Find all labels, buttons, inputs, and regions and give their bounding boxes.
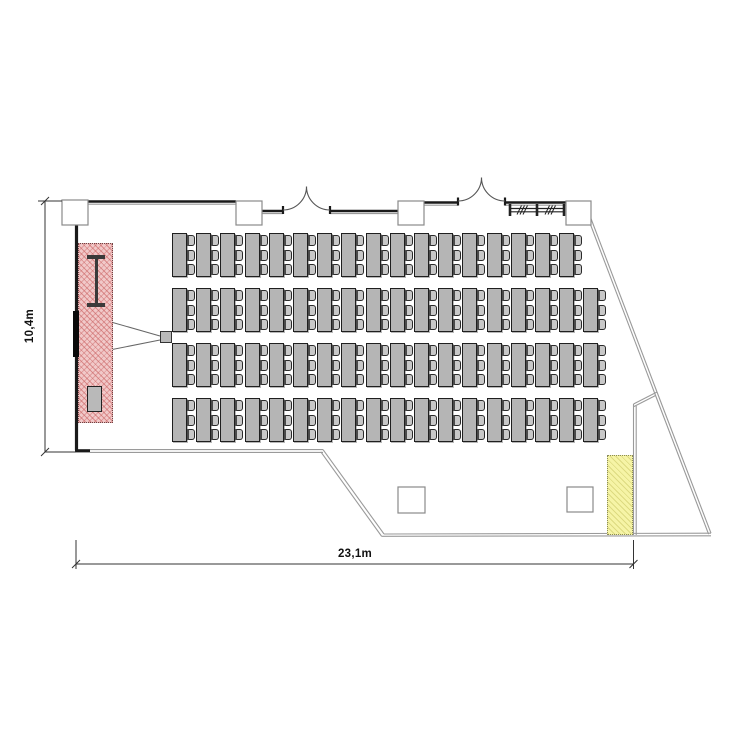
table-with-chairs [366,398,389,442]
chair [187,319,195,330]
chair [235,400,243,411]
chair [453,264,461,275]
chair [211,345,219,356]
chair [574,415,582,426]
table-with-chairs [438,233,461,277]
chair [453,305,461,316]
chair [356,400,364,411]
chair [574,360,582,371]
table [559,343,574,387]
table-with-chairs [317,288,340,332]
table-with-chairs [317,398,340,442]
chair [526,235,534,246]
table-with-chairs [583,343,606,387]
chair [405,264,413,275]
wardrobe-rail [509,204,565,216]
table-with-chairs [583,398,606,442]
table-with-chairs [487,398,510,442]
table [366,398,381,442]
chair [477,345,485,356]
chair [598,429,606,440]
chair [211,429,219,440]
table-with-chairs [245,343,268,387]
chair [550,290,558,301]
chair [356,264,364,275]
chair [187,290,195,301]
table [366,288,381,332]
table-with-chairs [511,288,534,332]
chair [574,290,582,301]
chair [526,400,534,411]
chair [332,415,340,426]
lectern-icon [87,303,105,307]
chair [381,415,389,426]
chair [574,345,582,356]
table-with-chairs [414,343,437,387]
table [462,398,477,442]
table-with-chairs [559,398,582,442]
chair [284,264,292,275]
table-with-chairs [559,233,582,277]
chair [550,415,558,426]
chair [260,429,268,440]
table [220,233,235,277]
table-with-chairs [559,288,582,332]
table-with-chairs [220,288,243,332]
table [269,398,284,442]
chair [429,415,437,426]
table-with-chairs [245,233,268,277]
chair [502,415,510,426]
table [535,398,550,442]
chair [211,305,219,316]
table-with-chairs [487,233,510,277]
table [487,233,502,277]
chair [187,400,195,411]
chair [284,345,292,356]
column-icon [398,201,424,225]
chair [526,360,534,371]
chair [235,290,243,301]
chair [260,374,268,385]
chair [550,374,558,385]
chair [574,319,582,330]
table-with-chairs [535,343,558,387]
chair [187,345,195,356]
table-with-chairs [269,343,292,387]
table [293,233,308,277]
chair [308,250,316,261]
table [341,398,356,442]
chair [574,235,582,246]
chair [550,400,558,411]
chair [308,305,316,316]
chair [211,360,219,371]
table [535,233,550,277]
chair [405,374,413,385]
floor-columns [398,487,593,513]
chair [429,319,437,330]
table [172,233,187,277]
chair [453,319,461,330]
chair [453,415,461,426]
chair [477,374,485,385]
table-with-chairs [462,398,485,442]
chair [550,305,558,316]
table-with-chairs [172,288,195,332]
chair [526,264,534,275]
table-with-chairs [293,288,316,332]
chair [284,290,292,301]
chair [260,290,268,301]
chair [574,264,582,275]
table [269,233,284,277]
chair [284,415,292,426]
chair [453,345,461,356]
chair [598,360,606,371]
chair [405,429,413,440]
chair [477,290,485,301]
chair [405,305,413,316]
table [511,233,526,277]
column-icon [62,200,88,225]
table-with-chairs [583,288,606,332]
chair [477,235,485,246]
chair [260,345,268,356]
chair [574,305,582,316]
chair [381,360,389,371]
chair [381,250,389,261]
chair [598,290,606,301]
chair [502,374,510,385]
chair [332,290,340,301]
chair [187,415,195,426]
chair [550,235,558,246]
table-with-chairs [438,288,461,332]
chair [502,235,510,246]
table-with-chairs [390,398,413,442]
chair [598,400,606,411]
table [438,233,453,277]
table-with-chairs [366,233,389,277]
chair [211,235,219,246]
chair [598,374,606,385]
chair [308,374,316,385]
chair [502,250,510,261]
chair [526,290,534,301]
chair [598,415,606,426]
table [390,343,405,387]
chair [332,360,340,371]
chair [211,400,219,411]
chair [526,250,534,261]
table [390,233,405,277]
chair [502,305,510,316]
table-with-chairs [196,288,219,332]
table [438,343,453,387]
height-dimension [38,197,76,456]
table [172,343,187,387]
chair [211,290,219,301]
chair [477,264,485,275]
table [172,288,187,332]
chair [550,360,558,371]
table [438,398,453,442]
column-icon [398,487,425,513]
chair [453,235,461,246]
chair [405,235,413,246]
table-with-chairs [341,343,364,387]
chair [574,250,582,261]
chair [308,415,316,426]
table [462,343,477,387]
chair [405,400,413,411]
table-with-chairs [196,343,219,387]
table [245,288,260,332]
table [196,398,211,442]
chair [598,305,606,316]
table-with-chairs [293,398,316,442]
chair [526,429,534,440]
chair [405,290,413,301]
table-with-chairs [196,233,219,277]
table [341,343,356,387]
chair [284,374,292,385]
chair [526,319,534,330]
table [487,343,502,387]
chair [477,250,485,261]
chair [405,250,413,261]
table [583,288,598,332]
column-icon [236,201,262,225]
table-with-chairs [390,343,413,387]
chair [356,360,364,371]
table [414,398,429,442]
table [559,288,574,332]
chair [211,415,219,426]
table [511,398,526,442]
chair [332,345,340,356]
table-with-chairs [341,233,364,277]
chair [187,264,195,275]
chair [308,400,316,411]
chair [332,264,340,275]
chair [284,429,292,440]
table [196,343,211,387]
height-dimension-label: 10,4m [24,294,38,358]
chair [308,360,316,371]
column-icon [566,201,591,225]
chair [356,319,364,330]
table [462,288,477,332]
table [317,398,332,442]
chair [381,400,389,411]
chair [502,400,510,411]
chair [284,305,292,316]
table-with-chairs [366,288,389,332]
chair [332,319,340,330]
chair [429,429,437,440]
chair [284,319,292,330]
table [438,288,453,332]
table [535,343,550,387]
table [390,398,405,442]
chair [260,250,268,261]
table-with-chairs [172,233,195,277]
chair [260,235,268,246]
chair [284,235,292,246]
table-with-chairs [220,343,243,387]
chair [574,374,582,385]
chair [526,345,534,356]
table-with-chairs [535,233,558,277]
chair [477,400,485,411]
chair [477,429,485,440]
table-with-chairs [293,233,316,277]
table [196,233,211,277]
chair [356,235,364,246]
table-with-chairs [366,343,389,387]
table [366,343,381,387]
chair [574,429,582,440]
table [293,288,308,332]
chair [211,319,219,330]
table [317,288,332,332]
table [269,343,284,387]
table-with-chairs [220,233,243,277]
chair [332,429,340,440]
chair [550,264,558,275]
chair [356,345,364,356]
table [583,343,598,387]
table [269,288,284,332]
table-with-chairs [462,233,485,277]
chair [308,429,316,440]
table [390,288,405,332]
chair [356,250,364,261]
chair [260,305,268,316]
chair [405,415,413,426]
chair [260,319,268,330]
chair [308,235,316,246]
chair [356,305,364,316]
chair [550,319,558,330]
table-with-chairs [341,288,364,332]
table-with-chairs [172,398,195,442]
table [559,398,574,442]
table [317,233,332,277]
table [487,288,502,332]
chair [308,345,316,356]
table-with-chairs [487,343,510,387]
chair [502,290,510,301]
chair [187,235,195,246]
chair [211,250,219,261]
chair [187,429,195,440]
chair [284,360,292,371]
chair [502,319,510,330]
chair [550,345,558,356]
chair [260,360,268,371]
chair [235,264,243,275]
table [172,398,187,442]
chair [381,290,389,301]
chair [332,305,340,316]
chair [260,400,268,411]
table-with-chairs [559,343,582,387]
chair [332,400,340,411]
chair [453,250,461,261]
chair [453,429,461,440]
projector-icon [160,331,172,343]
table-with-chairs [535,398,558,442]
chair [260,264,268,275]
table [559,233,574,277]
chair [356,429,364,440]
table-with-chairs [462,343,485,387]
chair [235,319,243,330]
chair [235,374,243,385]
chair [550,250,558,261]
table-with-chairs [414,398,437,442]
top-wall [88,202,566,214]
chair [235,250,243,261]
chair [284,400,292,411]
chair [429,374,437,385]
table-with-chairs [341,398,364,442]
floor-plan-canvas: 10,4m 23,1m [0,0,750,750]
table-with-chairs [511,343,534,387]
chair [502,345,510,356]
table [366,233,381,277]
chair [308,264,316,275]
lectern-icon [95,255,99,305]
chair [477,415,485,426]
table-with-chairs [220,398,243,442]
table-with-chairs [414,233,437,277]
table [220,343,235,387]
chair [429,290,437,301]
table [535,288,550,332]
chair [235,429,243,440]
chair [429,305,437,316]
chair [187,250,195,261]
table [220,288,235,332]
chair [429,400,437,411]
table [583,398,598,442]
chair [332,235,340,246]
table-with-chairs [245,398,268,442]
table-with-chairs [172,343,195,387]
chair [187,360,195,371]
table-with-chairs [269,233,292,277]
table [245,233,260,277]
chair [574,400,582,411]
chair [356,415,364,426]
chair [429,250,437,261]
table-with-chairs [511,398,534,442]
chair [356,374,364,385]
chair [405,345,413,356]
table [414,233,429,277]
chair [260,415,268,426]
chair [405,319,413,330]
column-icon [567,487,593,512]
chair [429,235,437,246]
table [220,398,235,442]
storage-strip [607,455,633,535]
chair [526,305,534,316]
